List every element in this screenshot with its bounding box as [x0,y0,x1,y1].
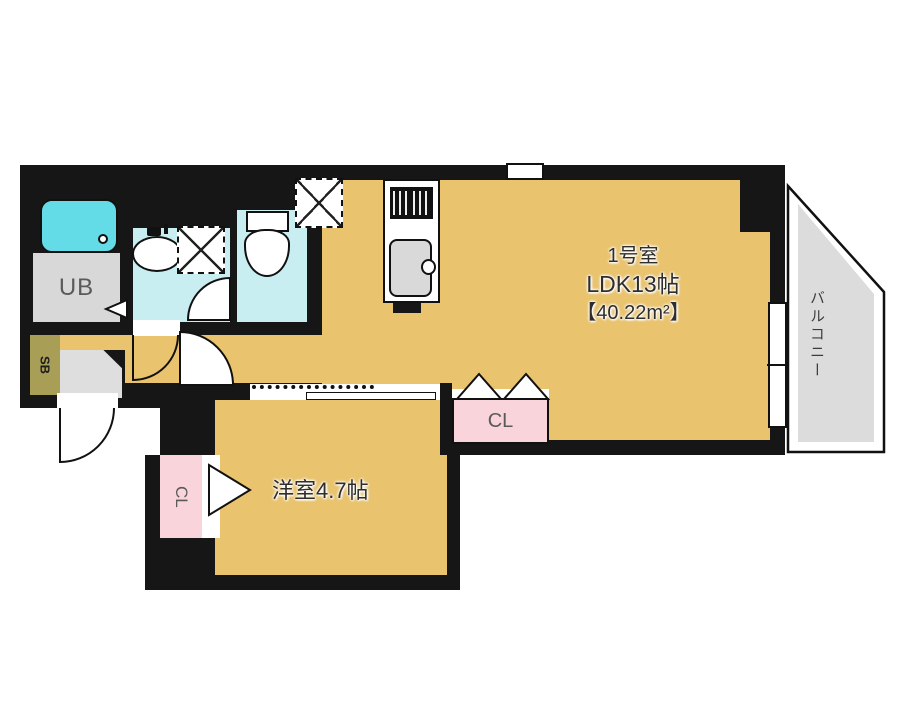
folding-door-icon [106,300,127,318]
ldk-label-block: 1号室 LDK13帖 【40.22m²】 [553,243,713,326]
door-swing-arcs [0,0,907,721]
entrance-door-swing [60,408,114,462]
ldk-size-label: LDK13帖 [553,269,713,299]
area-label: 【40.22m²】 [553,300,713,326]
washroom-door-swing [133,335,178,380]
hall-door-swing [180,332,233,385]
floor-plan: UB SB CL CL [0,0,907,721]
bathroom-door-swing [188,278,230,320]
room-number-label: 1号室 [553,243,713,269]
west-room-label: 洋室4.7帖 [272,473,369,505]
